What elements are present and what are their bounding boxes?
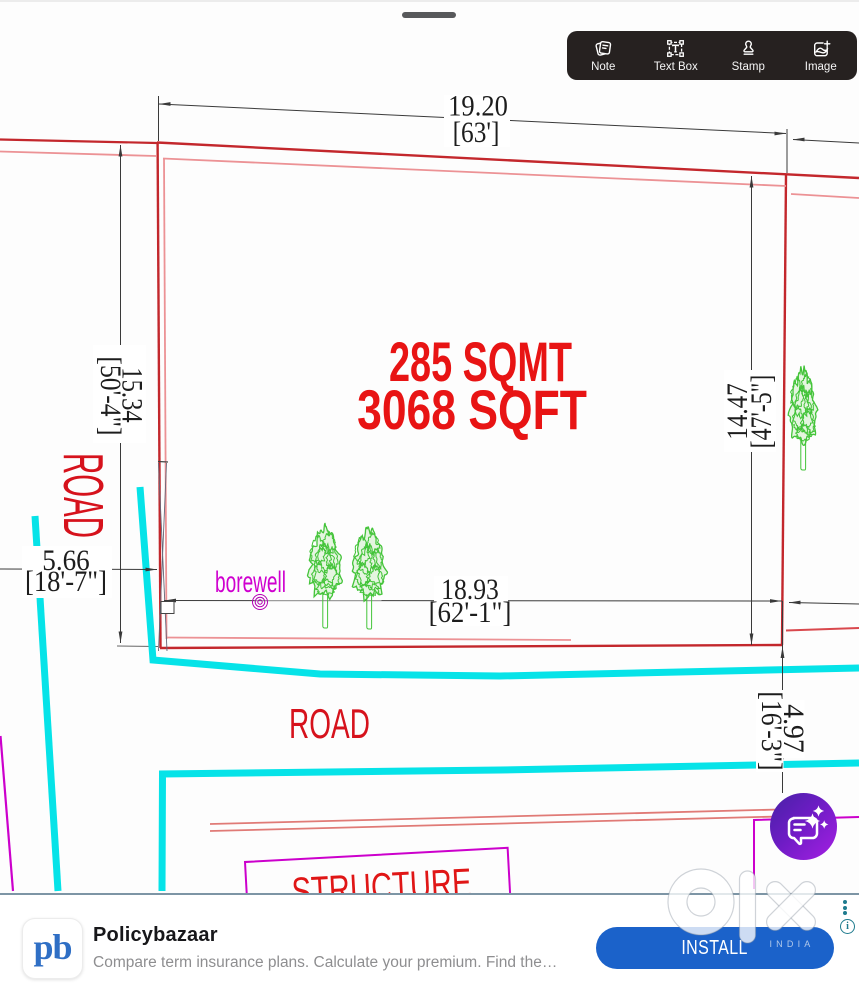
svg-text:borewell: borewell <box>215 566 286 599</box>
svg-text:ROAD: ROAD <box>51 453 115 538</box>
svg-text:3068 SQFT: 3068 SQFT <box>357 378 587 441</box>
svg-text:[50'-4"]: [50'-4"] <box>95 356 128 435</box>
svg-text:[62'-1"]: [62'-1"] <box>429 597 512 629</box>
svg-text:[47'-5"]: [47'-5"] <box>745 375 778 449</box>
svg-text:[63']: [63'] <box>453 115 500 148</box>
svg-text:[16'-3"]: [16'-3"] <box>756 691 789 770</box>
svg-text:[18'-7"]: [18'-7"] <box>25 566 107 599</box>
svg-text:ROAD: ROAD <box>289 700 370 747</box>
